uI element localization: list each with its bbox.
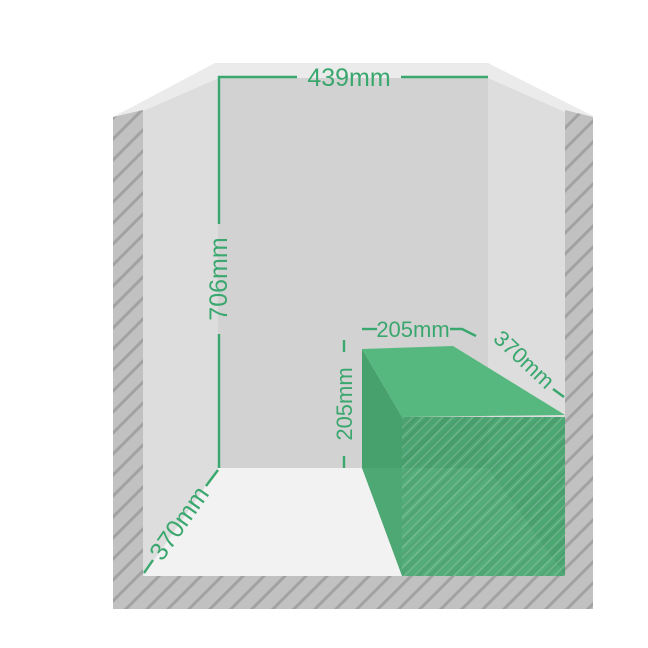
room-height-label: 706mm xyxy=(205,237,233,320)
box-front-face-stripe-texture xyxy=(402,417,565,576)
right-wall-section-hatch xyxy=(565,110,593,576)
box-height-label: 205mm xyxy=(332,367,357,440)
interior-dimensions-diagram: 439mm 706mm 370mm 205mm 370mm 205mm xyxy=(0,0,648,648)
left-wall-section-hatch xyxy=(113,110,143,576)
bottom-wall-section-hatch xyxy=(113,576,593,609)
diagram-canvas: 439mm 706mm 370mm 205mm 370mm 205mm xyxy=(0,0,648,648)
room-width-label: 439mm xyxy=(307,64,390,92)
box-width-label: 205mm xyxy=(376,317,449,342)
